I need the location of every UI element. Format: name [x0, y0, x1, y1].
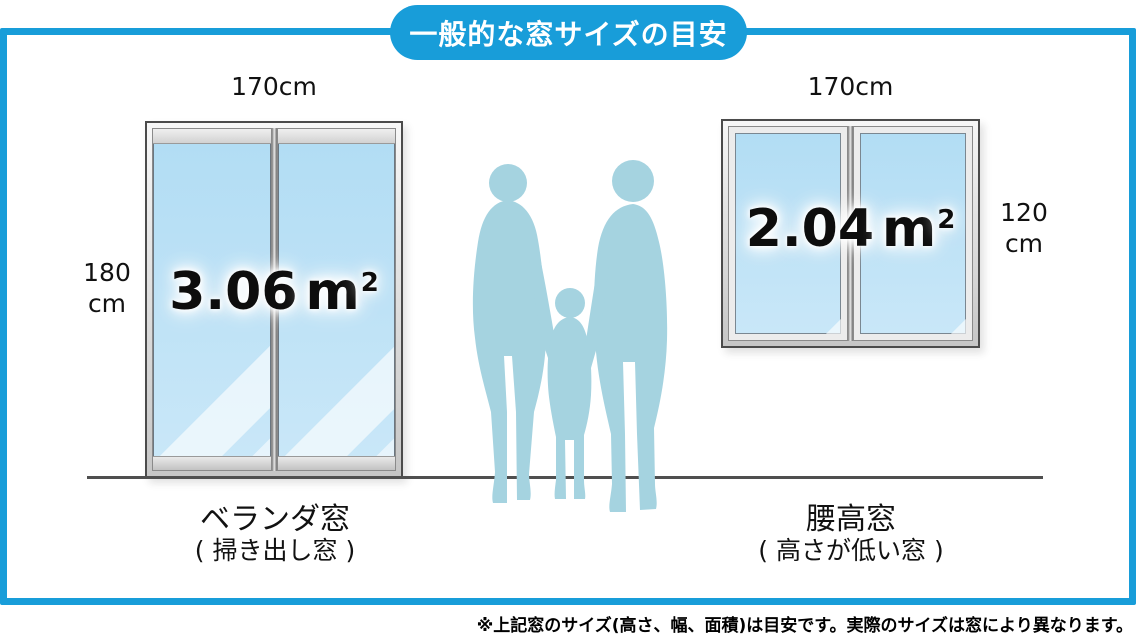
right-window-area-unit: m [882, 199, 936, 259]
right-window-height-label: 120 cm [992, 197, 1056, 260]
left-window-right-pane-bottom-rail [278, 456, 396, 470]
title-badge: 一般的な窓サイズの目安 [390, 5, 747, 60]
right-window-area-sup: 2 [937, 205, 955, 235]
right-window-height-unit: cm [992, 228, 1056, 259]
left-window-left-pane-top-rail [153, 129, 271, 144]
page-title: 一般的な窓サイズの目安 [409, 13, 727, 53]
left-window: 3.06m2 [145, 121, 403, 478]
right-window: 2.04m2 [721, 119, 980, 348]
left-window-left-pane-bottom-rail [153, 456, 271, 470]
left-window-area-label: 3.06m2 [169, 262, 379, 322]
right-window-width-label: 170cm [721, 72, 980, 101]
left-window-area-sup: 2 [361, 268, 379, 298]
left-window-subcaption: ( 掃き出し窓 ) [125, 531, 425, 567]
left-window-height-unit: cm [77, 288, 137, 319]
right-window-area-label: 2.04m2 [746, 199, 956, 259]
left-window-height-value: 180 [77, 257, 137, 288]
left-window-area-value: 3.06 [169, 262, 297, 322]
left-window-height-label: 180 cm [77, 257, 137, 320]
right-window-subcaption: ( 高さが低い窓 ) [701, 531, 1001, 567]
left-window-width-label: 170cm [145, 72, 403, 101]
left-window-right-pane-top-rail [278, 129, 396, 144]
right-window-height-value: 120 [992, 197, 1056, 228]
footnote: ※上記窓のサイズ(高さ、幅、面積)は目安です。実際のサイズは窓により異なります。 [3, 611, 1133, 636]
family-silhouette-icon [450, 150, 720, 522]
right-window-area-value: 2.04 [746, 199, 874, 259]
left-window-area-unit: m [306, 262, 360, 322]
